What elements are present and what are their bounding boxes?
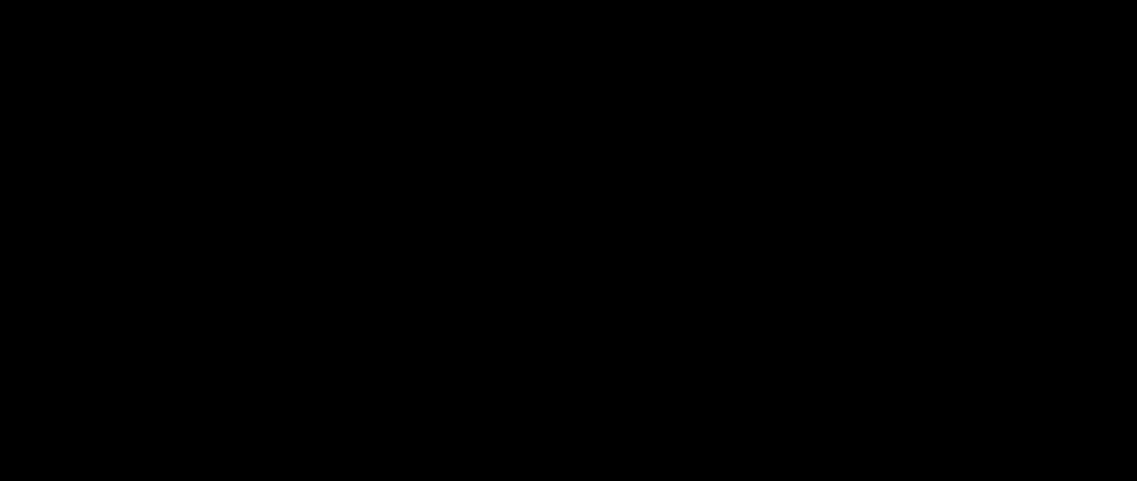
game-screen <box>0 0 1137 481</box>
overhead-map[interactable] <box>0 0 1137 481</box>
